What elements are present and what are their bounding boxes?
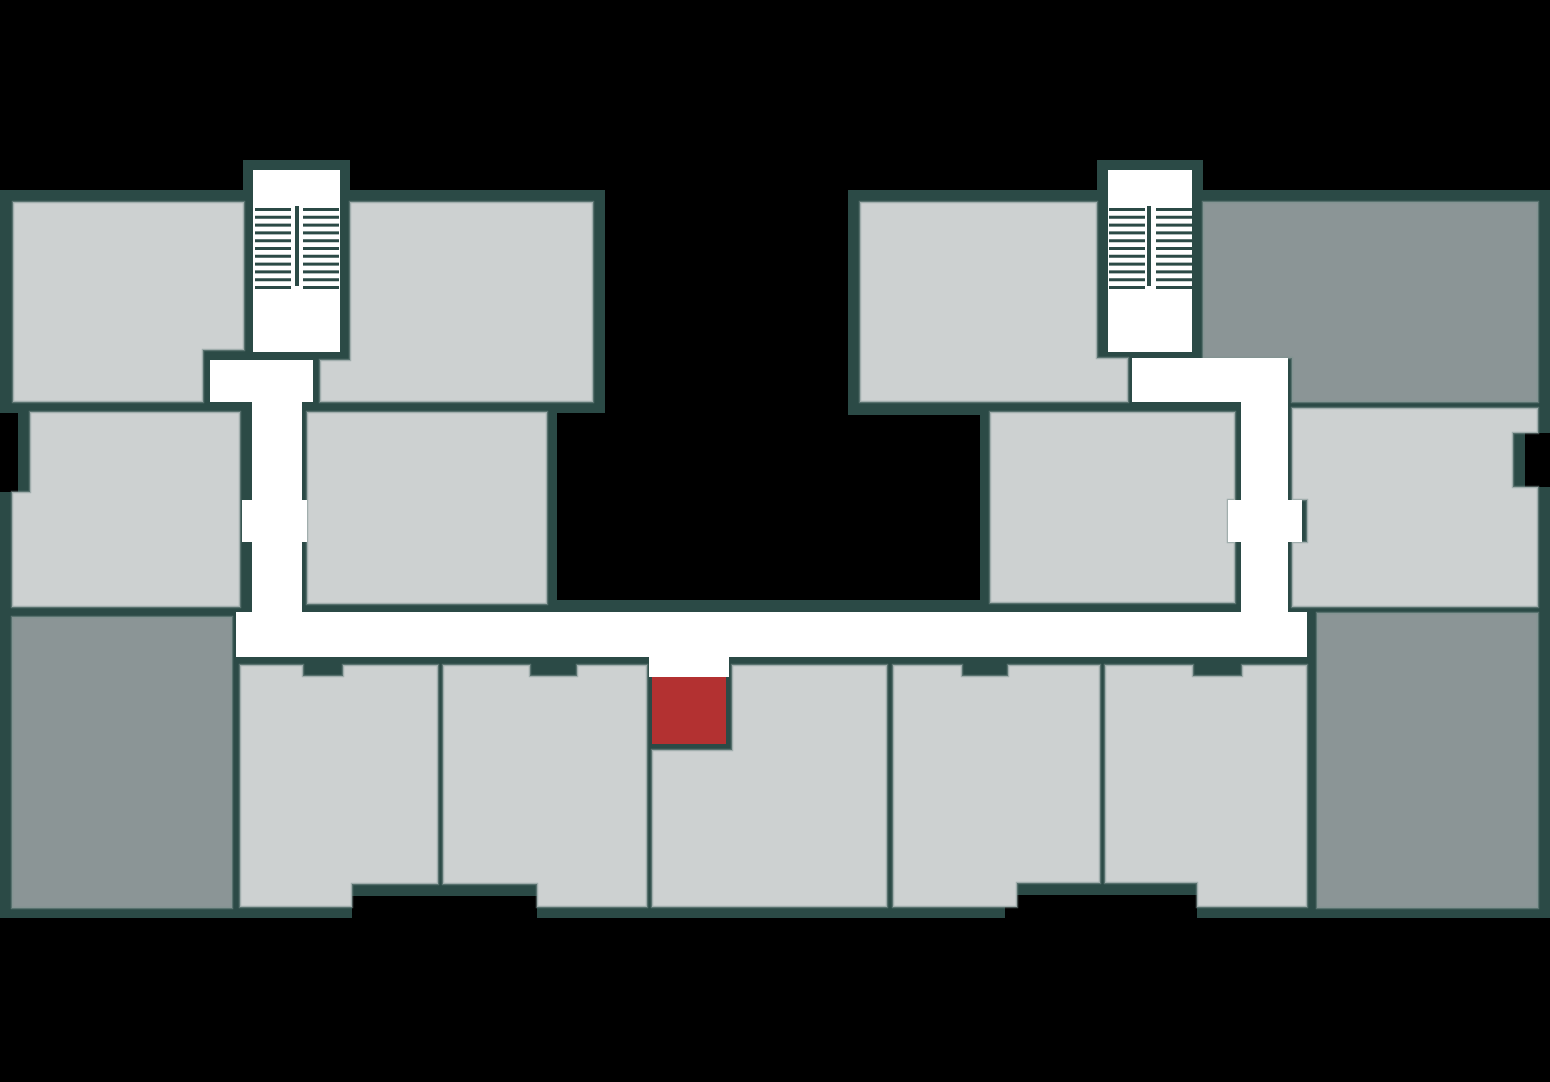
unit-mid-left[interactable] bbox=[12, 412, 240, 607]
corridor-dip bbox=[649, 655, 729, 677]
unit-highlighted[interactable] bbox=[652, 677, 726, 744]
unit-bottom-4[interactable] bbox=[893, 665, 1100, 907]
unit-inner-left[interactable] bbox=[307, 412, 547, 604]
unit-wing2-left[interactable] bbox=[860, 202, 1128, 402]
unit-bottom-5[interactable] bbox=[1105, 665, 1307, 907]
unit-dark-bottom-right[interactable] bbox=[1317, 613, 1538, 908]
unit-wing2-mid[interactable] bbox=[990, 412, 1235, 603]
unit-right-mid[interactable] bbox=[1292, 408, 1538, 607]
floor-plan-svg bbox=[0, 0, 1550, 1082]
main-corridor bbox=[236, 612, 1307, 657]
floor-plan-canvas bbox=[0, 0, 1550, 1082]
unit-bottom-2[interactable] bbox=[443, 665, 647, 907]
unit-bottom-1[interactable] bbox=[240, 665, 438, 907]
unit-dark-bottom-left[interactable] bbox=[12, 617, 232, 908]
unit-top-left-2[interactable] bbox=[320, 202, 593, 402]
